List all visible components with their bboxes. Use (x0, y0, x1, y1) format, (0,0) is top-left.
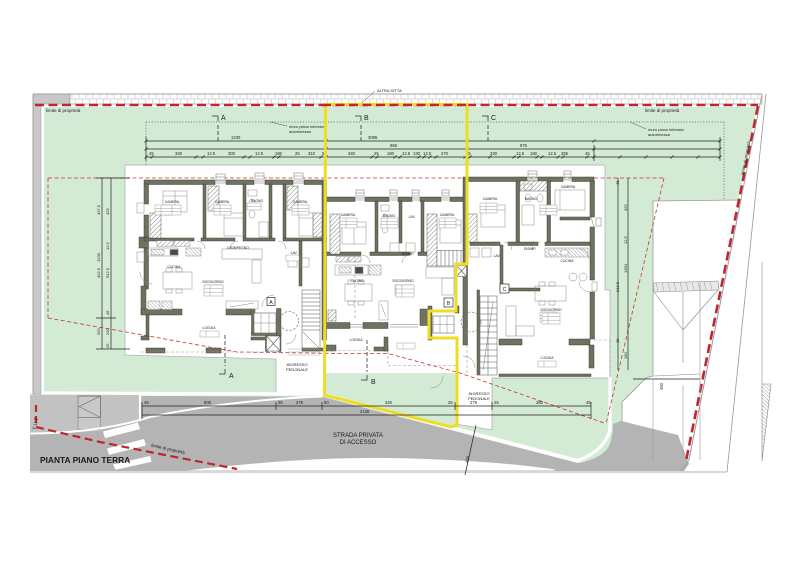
svg-text:420: 420 (385, 400, 393, 405)
svg-text:CAMERA: CAMERA (215, 200, 230, 204)
svg-text:1230: 1230 (96, 252, 101, 262)
svg-text:ALTRA DITTA: ALTRA DITTA (377, 88, 402, 93)
svg-text:25: 25 (105, 343, 110, 348)
svg-text:45: 45 (149, 151, 154, 156)
svg-text:CAMERA: CAMERA (483, 197, 498, 201)
svg-text:1350: 1350 (623, 263, 628, 273)
svg-text:450: 450 (659, 382, 664, 390)
svg-text:A: A (221, 115, 226, 122)
svg-text:SOGGIORNO: SOGGIORNO (202, 280, 224, 284)
svg-text:330: 330 (175, 151, 183, 156)
svg-text:275: 275 (296, 400, 304, 405)
svg-text:25: 25 (448, 400, 453, 405)
svg-text:CUCINA: CUCINA (351, 279, 365, 283)
svg-text:PEDONALE: PEDONALE (286, 367, 308, 372)
svg-text:2135: 2135 (360, 409, 370, 414)
svg-text:LAV.: LAV. (409, 215, 416, 219)
svg-text:512.5: 512.5 (105, 267, 110, 278)
svg-text:3095: 3095 (368, 135, 378, 140)
svg-text:A: A (229, 373, 234, 380)
svg-text:25: 25 (295, 151, 300, 156)
svg-text:limite di proprietà: limite di proprietà (645, 108, 680, 113)
svg-text:BAGNO: BAGNO (251, 199, 264, 203)
svg-text:612.5: 612.5 (615, 281, 620, 292)
svg-text:230: 230 (105, 328, 110, 335)
svg-text:LOGGIA: LOGGIA (540, 356, 554, 360)
svg-text:12.5: 12.5 (623, 235, 628, 244)
svg-text:LAV.: LAV. (494, 254, 501, 258)
svg-text:45: 45 (586, 400, 591, 405)
svg-text:C: C (491, 115, 496, 122)
svg-text:965: 965 (390, 143, 398, 148)
svg-text:12.5: 12.5 (423, 151, 432, 156)
svg-text:PIANTA PIANO TERRA: PIANTA PIANO TERRA (40, 455, 130, 465)
svg-text:DISIMPEGNO: DISIMPEGNO (227, 246, 249, 250)
svg-text:12.5: 12.5 (105, 241, 110, 250)
svg-text:CAMERA: CAMERA (293, 200, 308, 204)
svg-text:CAMERA: CAMERA (561, 185, 576, 189)
svg-text:270: 270 (441, 151, 449, 156)
svg-text:130: 130 (413, 151, 421, 156)
svg-text:180: 180 (275, 151, 283, 156)
svg-text:SOGGIORNO: SOGGIORNO (392, 279, 414, 283)
svg-text:B: B (364, 115, 369, 122)
svg-text:12.5: 12.5 (255, 151, 264, 156)
svg-text:255: 255 (561, 151, 569, 156)
svg-text:LOGGIA: LOGGIA (349, 338, 363, 342)
svg-text:805: 805 (204, 400, 212, 405)
svg-text:300: 300 (228, 151, 236, 156)
svg-text:SOGGIORNO: SOGGIORNO (540, 308, 562, 312)
svg-text:250: 250 (96, 328, 101, 335)
svg-text:330: 330 (490, 151, 498, 156)
svg-text:12.5: 12.5 (402, 151, 411, 156)
svg-text:CUCINA: CUCINA (561, 259, 575, 263)
svg-text:25: 25 (374, 151, 379, 156)
svg-text:437.5: 437.5 (96, 204, 101, 215)
svg-text:425: 425 (623, 204, 628, 211)
svg-text:275: 275 (470, 400, 478, 405)
svg-text:CAMERA: CAMERA (440, 213, 455, 217)
svg-text:STRADA PRIVATA: STRADA PRIVATA (333, 433, 383, 439)
svg-text:45: 45 (615, 338, 620, 343)
svg-text:BAGNO: BAGNO (525, 197, 538, 201)
svg-text:422.5: 422.5 (96, 267, 101, 278)
svg-text:45: 45 (615, 180, 620, 185)
svg-text:1230: 1230 (231, 135, 241, 140)
svg-text:150: 150 (623, 352, 628, 359)
svg-text:DI ACCESSO: DI ACCESSO (340, 440, 377, 446)
svg-text:CAMERA: CAMERA (341, 213, 356, 217)
svg-text:50: 50 (324, 400, 329, 405)
svg-text:12.5: 12.5 (548, 151, 557, 156)
svg-text:CUCINA: CUCINA (168, 265, 182, 269)
svg-text:autorimessa: autorimessa (289, 129, 312, 134)
svg-text:LOGGIA: LOGGIA (202, 326, 216, 330)
svg-text:180: 180 (387, 151, 395, 156)
svg-text:BAGNO: BAGNO (383, 214, 396, 218)
svg-text:B: B (371, 379, 376, 386)
svg-text:340: 340 (348, 151, 356, 156)
svg-text:310: 310 (308, 151, 316, 156)
svg-text:DISIMP.: DISIMP. (524, 247, 536, 251)
svg-text:180: 180 (530, 151, 538, 156)
svg-text:autorimessa: autorimessa (648, 132, 671, 137)
svg-text:DISIMP.: DISIMP. (402, 252, 414, 256)
svg-text:CAMERA: CAMERA (165, 200, 180, 204)
svg-text:875: 875 (520, 143, 528, 148)
svg-text:12.5: 12.5 (516, 151, 525, 156)
svg-text:C: C (503, 287, 507, 293)
svg-text:12.5: 12.5 (207, 151, 216, 156)
svg-text:45: 45 (144, 400, 149, 405)
svg-text:45: 45 (105, 310, 110, 315)
svg-text:limite di proprietà: limite di proprietà (46, 108, 81, 113)
svg-text:425: 425 (105, 208, 110, 215)
svg-text:25: 25 (494, 400, 499, 405)
svg-text:45: 45 (585, 151, 590, 156)
svg-text:LAV.: LAV. (291, 251, 298, 255)
svg-text:25: 25 (278, 400, 283, 405)
svg-text:380: 380 (536, 400, 544, 405)
